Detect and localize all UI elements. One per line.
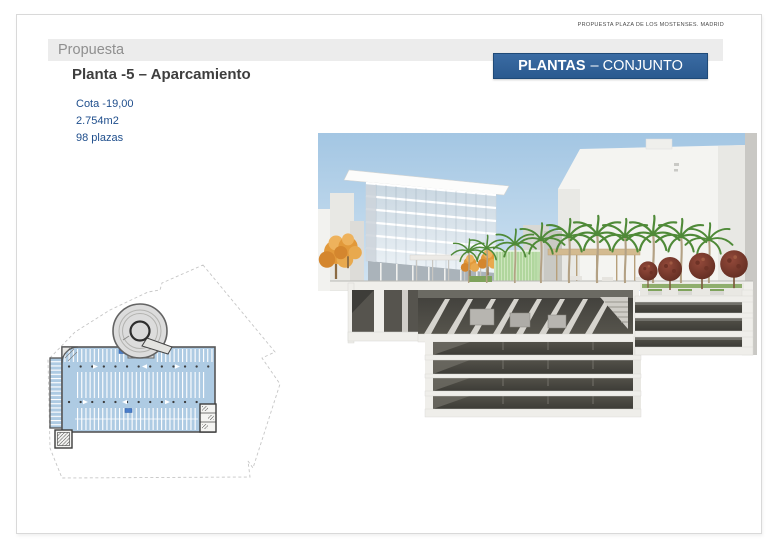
- stat-capacity: 98 plazas: [76, 130, 133, 147]
- stair-core-right: [200, 404, 216, 432]
- page-title: Planta -5 – Aparcamiento: [72, 66, 251, 83]
- right-parking-block: [633, 290, 753, 355]
- level-1-rooms: [348, 283, 425, 343]
- stair-core-bottomleft: [55, 430, 72, 448]
- parking-left-wing: [50, 358, 62, 428]
- stat-area: 2.754m2: [76, 113, 133, 130]
- deep-parking-stack: [425, 334, 641, 417]
- plan-stats: Cota -19,00 2.754m2 98 plazas: [76, 96, 133, 147]
- level-1-beam-hall: [418, 290, 640, 342]
- tag-primary: PLANTAS: [518, 58, 585, 74]
- underground-section: [348, 283, 753, 417]
- section-perspective-render: [318, 133, 757, 443]
- stat-cota: Cota -19,00: [76, 96, 133, 113]
- white-building: [558, 139, 745, 283]
- spiral-ramp: [113, 304, 172, 358]
- green-glass-pavilion: [494, 251, 540, 283]
- tag-secondary: – CONJUNTO: [591, 58, 683, 74]
- header-note: PROPUESTA PLAZA DE LOS MOSTENSES. MADRID: [578, 22, 724, 28]
- slide-stage: PROPUESTA PLAZA DE LOS MOSTENSES. MADRID…: [0, 0, 778, 550]
- plantas-conjunto-tag: PLANTAS – CONJUNTO: [493, 53, 708, 79]
- section-label: Propuesta: [48, 42, 124, 58]
- parking-floor-plan: [35, 252, 315, 487]
